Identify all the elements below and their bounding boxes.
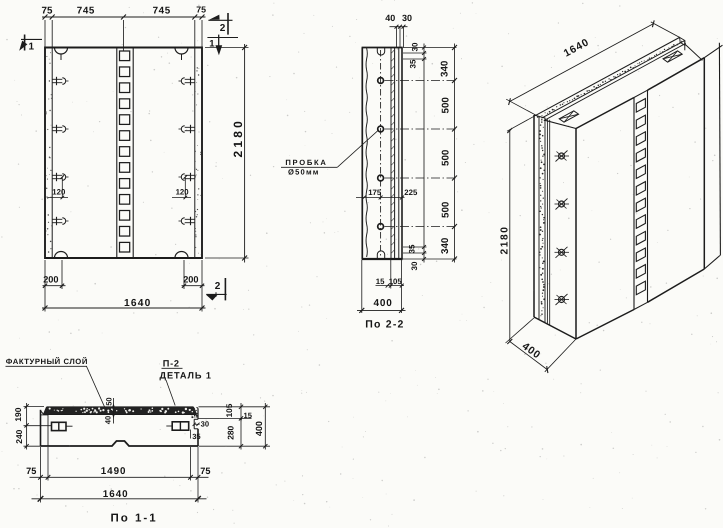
svg-text:75: 75 [200, 466, 210, 476]
svg-text:105: 105 [389, 277, 403, 286]
svg-text:400: 400 [254, 421, 264, 436]
svg-text:2180: 2180 [499, 225, 510, 254]
svg-text:190: 190 [13, 407, 23, 421]
svg-text:75: 75 [42, 6, 53, 17]
svg-text:30: 30 [201, 420, 209, 429]
svg-text:1640: 1640 [124, 298, 151, 309]
svg-text:240: 240 [14, 429, 24, 443]
svg-text:175: 175 [368, 188, 382, 197]
svg-text:50: 50 [105, 397, 114, 405]
svg-text:200: 200 [43, 274, 58, 284]
svg-text:745: 745 [77, 6, 95, 17]
svg-text:ФАКТУРНЫЙ СЛОЙ: ФАКТУРНЫЙ СЛОЙ [6, 357, 88, 366]
svg-text:75: 75 [196, 4, 206, 14]
svg-text:225: 225 [404, 188, 418, 197]
svg-text:П-2: П-2 [163, 358, 180, 368]
svg-text:По 1-1: По 1-1 [111, 513, 158, 525]
svg-text:35: 35 [409, 59, 418, 68]
svg-text:30: 30 [402, 13, 412, 23]
svg-text:200: 200 [183, 274, 198, 284]
svg-text:ПРОБКА: ПРОБКА [285, 158, 327, 167]
svg-text:40: 40 [104, 416, 113, 424]
svg-text:400: 400 [520, 340, 543, 361]
svg-text:35: 35 [408, 244, 417, 253]
svg-text:500: 500 [441, 201, 452, 218]
svg-text:30: 30 [410, 261, 419, 270]
svg-text:40: 40 [385, 13, 395, 23]
svg-text:500: 500 [441, 97, 452, 114]
svg-text:1640: 1640 [562, 36, 592, 60]
svg-text:400: 400 [374, 298, 393, 309]
svg-text:15: 15 [376, 277, 385, 286]
svg-text:35: 35 [192, 432, 201, 441]
svg-text:340: 340 [440, 60, 451, 77]
svg-text:120: 120 [52, 187, 66, 196]
svg-text:2: 2 [215, 281, 221, 292]
svg-text:30: 30 [411, 42, 420, 51]
svg-text:1: 1 [29, 41, 35, 52]
svg-text:75: 75 [26, 466, 36, 476]
svg-text:2180: 2180 [231, 118, 245, 158]
svg-text:Ø50мм: Ø50мм [288, 168, 320, 177]
svg-text:500: 500 [441, 149, 452, 166]
svg-text:280: 280 [225, 425, 235, 439]
svg-text:15: 15 [244, 411, 253, 420]
svg-text:340: 340 [440, 237, 451, 254]
svg-text:1: 1 [209, 38, 215, 49]
svg-text:1490: 1490 [101, 466, 127, 477]
svg-text:По 2-2: По 2-2 [365, 319, 404, 331]
svg-text:105: 105 [225, 403, 234, 417]
svg-text:ДЕТАЛЬ 1: ДЕТАЛЬ 1 [160, 370, 212, 380]
svg-text:745: 745 [153, 6, 171, 17]
svg-text:1640: 1640 [103, 489, 129, 500]
svg-text:2: 2 [220, 23, 226, 34]
svg-text:120: 120 [176, 187, 190, 196]
